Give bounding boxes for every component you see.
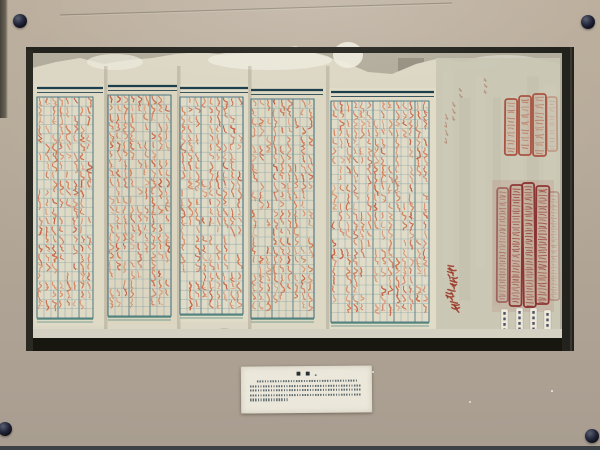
roster-panel [35,84,105,326]
seal-bottom-echo [549,192,560,300]
frame-screw [585,429,599,443]
exhibit-label-title-mark: ▪ [315,373,317,377]
recess-left-frame [26,50,33,351]
exhibit-label-line [250,389,361,392]
page-crease [248,66,252,332]
page-crease [104,66,108,332]
recess-top-frame [26,47,574,53]
dust-speck [469,401,471,403]
seal-bottom [497,188,508,302]
exhibit-label-line [250,398,289,401]
seal-bottom [509,185,522,306]
exhibit-label-text [248,379,365,401]
dust-speck [372,371,374,373]
page-crease [326,66,330,332]
exhibit-label-title: ■ ■ [296,372,312,377]
exhibit-label-line [250,393,361,396]
frame-screw [581,15,595,29]
page-crease [177,66,181,332]
seal-top [519,96,531,155]
roster-panel [329,88,436,330]
photo-bottom-edge [0,446,600,450]
glass-wire-reflection [60,3,452,16]
recess-ledge [30,329,562,339]
exhibit-label-line [250,384,361,387]
recess-right-frame [562,50,574,351]
exhibit-label-title-row: ■ ■ ▪ [248,369,365,377]
dust-speck [551,390,553,392]
seal-top [533,94,546,156]
roster-panel [249,86,325,326]
roster-panel [178,84,250,322]
roster-panels [35,82,436,330]
seal-bottom [522,183,536,307]
museum-display-photo: ■ ■ ▪ [0,0,600,450]
frame-screw [13,14,27,28]
recess-shadow-bar [28,338,574,351]
seal-bottom [536,186,550,304]
seal-top [505,99,517,155]
exhibit-label: ■ ■ ▪ [241,365,372,413]
exhibit-label-line [257,380,358,383]
seal-top-echo [547,97,557,151]
roster-panel [106,82,179,324]
